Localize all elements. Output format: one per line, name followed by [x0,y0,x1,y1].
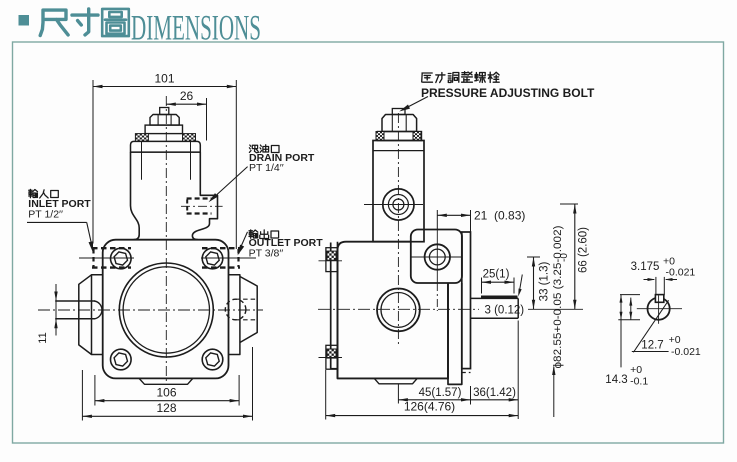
svg-text:PT 1/4′′: PT 1/4′′ [249,162,284,174]
svg-text:12.7: 12.7 [641,340,663,352]
svg-text:+0: +0 [630,364,642,376]
svg-text:-0.021: -0.021 [666,267,696,279]
svg-text:26: 26 [180,89,194,103]
svg-text:ϕ82.55+0-0.05 (3.25-0.002): ϕ82.55+0-0.05 (3.25-0.002) [552,226,564,369]
svg-text:3 (0.12): 3 (0.12) [485,305,525,317]
svg-text:33 (1.3): 33 (1.3) [539,262,551,302]
svg-text:128: 128 [156,401,176,415]
svg-text:PRESSURE ADJUSTING BOLT: PRESSURE ADJUSTING BOLT [421,86,595,100]
svg-text:PT 3/8′′: PT 3/8′′ [249,248,284,260]
svg-text:14.3: 14.3 [605,374,627,386]
svg-text:66 (2.60): 66 (2.60) [578,227,590,273]
svg-text:36(1.42): 36(1.42) [473,387,516,399]
svg-text:-0: -0 [559,253,570,262]
svg-text:45(1.57): 45(1.57) [419,387,462,399]
svg-text:25(1): 25(1) [483,269,510,281]
svg-text:11: 11 [37,332,49,343]
svg-text:-0.1: -0.1 [630,376,648,388]
svg-text:-0.021: -0.021 [671,346,701,358]
svg-text:21 (0.83): 21 (0.83) [474,209,525,223]
svg-text:106: 106 [156,386,176,400]
svg-text:PT 1/2′′: PT 1/2′′ [28,209,63,221]
svg-text:+0: +0 [669,334,681,346]
svg-text:101: 101 [154,72,174,86]
svg-text:3.175: 3.175 [631,261,660,273]
svg-text:126(4.76): 126(4.76) [404,400,455,414]
